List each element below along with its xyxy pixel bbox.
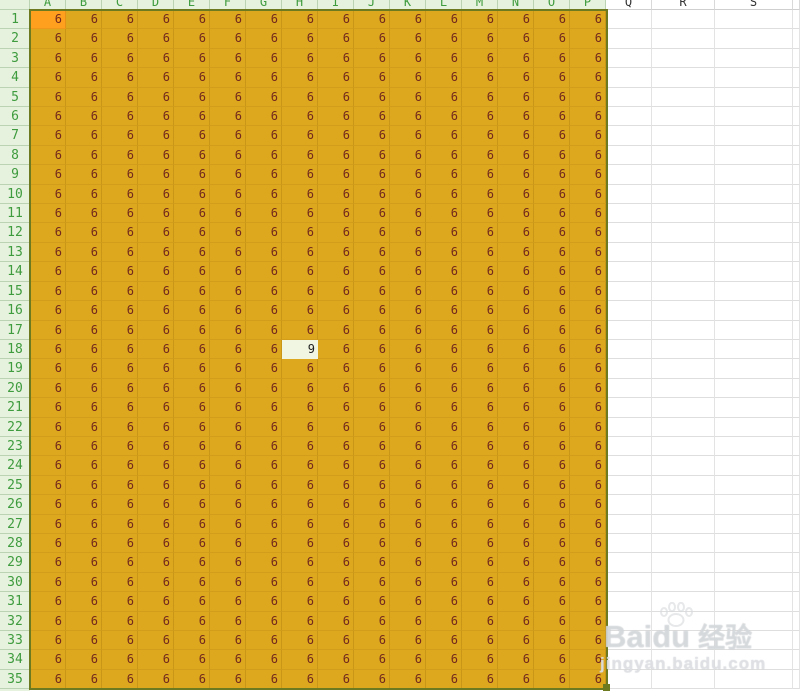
- cell-G12[interactable]: 6: [246, 223, 282, 242]
- cell-K31[interactable]: 6: [390, 592, 426, 611]
- cell-I34[interactable]: 6: [318, 650, 354, 669]
- cell-J16[interactable]: 6: [354, 301, 390, 320]
- cell-J18[interactable]: 6: [354, 340, 390, 359]
- cell-Q8[interactable]: [606, 146, 652, 165]
- cell-F9[interactable]: 6: [210, 165, 246, 184]
- cell-H14[interactable]: 6: [282, 262, 318, 281]
- row-header-9[interactable]: 9: [0, 165, 30, 184]
- cell-B34[interactable]: 6: [66, 650, 102, 669]
- cell-B16[interactable]: 6: [66, 301, 102, 320]
- cell-S6[interactable]: [715, 107, 793, 126]
- cell-R23[interactable]: [652, 437, 715, 456]
- cell-E3[interactable]: 6: [174, 49, 210, 68]
- cell-Q26[interactable]: [606, 495, 652, 514]
- cell-D14[interactable]: 6: [138, 262, 174, 281]
- cell-M10[interactable]: 6: [462, 185, 498, 204]
- cell-A6[interactable]: 6: [30, 107, 66, 126]
- cell-Q24[interactable]: [606, 456, 652, 475]
- cell-M34[interactable]: 6: [462, 650, 498, 669]
- cell-E34[interactable]: 6: [174, 650, 210, 669]
- cell-A2[interactable]: 6: [30, 29, 66, 48]
- cell-P3[interactable]: 6: [570, 49, 606, 68]
- cell-J31[interactable]: 6: [354, 592, 390, 611]
- cell-C14[interactable]: 6: [102, 262, 138, 281]
- cell-A31[interactable]: 6: [30, 592, 66, 611]
- cell-Q31[interactable]: [606, 592, 652, 611]
- cell-G9[interactable]: 6: [246, 165, 282, 184]
- column-header-L[interactable]: L: [426, 0, 462, 10]
- cell-S7[interactable]: [715, 126, 793, 145]
- cell-J25[interactable]: 6: [354, 476, 390, 495]
- cell-C13[interactable]: 6: [102, 243, 138, 262]
- cell-E14[interactable]: 6: [174, 262, 210, 281]
- cell-P19[interactable]: 6: [570, 359, 606, 378]
- cell-S4[interactable]: [715, 68, 793, 87]
- cell-Q20[interactable]: [606, 379, 652, 398]
- cell-J20[interactable]: 6: [354, 379, 390, 398]
- cell-K11[interactable]: 6: [390, 204, 426, 223]
- cell-Q1[interactable]: [606, 10, 652, 29]
- cell-E23[interactable]: 6: [174, 437, 210, 456]
- cell-S3[interactable]: [715, 49, 793, 68]
- cell-R1[interactable]: [652, 10, 715, 29]
- cell-M13[interactable]: 6: [462, 243, 498, 262]
- cell-E24[interactable]: 6: [174, 456, 210, 475]
- cell-B5[interactable]: 6: [66, 88, 102, 107]
- cell-I32[interactable]: 6: [318, 612, 354, 631]
- cell-G29[interactable]: 6: [246, 553, 282, 572]
- cell-N26[interactable]: 6: [498, 495, 534, 514]
- cell-M21[interactable]: 6: [462, 398, 498, 417]
- cell-L7[interactable]: 6: [426, 126, 462, 145]
- cell-L8[interactable]: 6: [426, 146, 462, 165]
- cell-C29[interactable]: 6: [102, 553, 138, 572]
- cell-A33[interactable]: 6: [30, 631, 66, 650]
- column-header-K[interactable]: K: [390, 0, 426, 10]
- cell-N12[interactable]: 6: [498, 223, 534, 242]
- cell-H16[interactable]: 6: [282, 301, 318, 320]
- cell-I1[interactable]: 6: [318, 10, 354, 29]
- cell-B19[interactable]: 6: [66, 359, 102, 378]
- cell-S27[interactable]: [715, 515, 793, 534]
- cell-A13[interactable]: 6: [30, 243, 66, 262]
- cell-B23[interactable]: 6: [66, 437, 102, 456]
- cell-A11[interactable]: 6: [30, 204, 66, 223]
- column-header-I[interactable]: I: [318, 0, 354, 10]
- cell-M18[interactable]: 6: [462, 340, 498, 359]
- cell-D28[interactable]: 6: [138, 534, 174, 553]
- cell-J34[interactable]: 6: [354, 650, 390, 669]
- cell-C35[interactable]: 6: [102, 670, 138, 689]
- cell-A26[interactable]: 6: [30, 495, 66, 514]
- cell-C17[interactable]: 6: [102, 321, 138, 340]
- cell-L5[interactable]: 6: [426, 88, 462, 107]
- cell-A4[interactable]: 6: [30, 68, 66, 87]
- cell-D25[interactable]: 6: [138, 476, 174, 495]
- cell-B28[interactable]: 6: [66, 534, 102, 553]
- cell-K9[interactable]: 6: [390, 165, 426, 184]
- cell-C1[interactable]: 6: [102, 10, 138, 29]
- cell-O18[interactable]: 6: [534, 340, 570, 359]
- cell-F13[interactable]: 6: [210, 243, 246, 262]
- cell-B27[interactable]: 6: [66, 515, 102, 534]
- cell-L33[interactable]: 6: [426, 631, 462, 650]
- row-header-33[interactable]: 33: [0, 631, 30, 650]
- cell-I7[interactable]: 6: [318, 126, 354, 145]
- cell-Q12[interactable]: [606, 223, 652, 242]
- cell-O28[interactable]: 6: [534, 534, 570, 553]
- cell-I16[interactable]: 6: [318, 301, 354, 320]
- cell-D1[interactable]: 6: [138, 10, 174, 29]
- cell-I19[interactable]: 6: [318, 359, 354, 378]
- cell-I33[interactable]: 6: [318, 631, 354, 650]
- cell-O23[interactable]: 6: [534, 437, 570, 456]
- cell-H12[interactable]: 6: [282, 223, 318, 242]
- row-header-6[interactable]: 6: [0, 107, 30, 126]
- cell-G20[interactable]: 6: [246, 379, 282, 398]
- cell-E22[interactable]: 6: [174, 418, 210, 437]
- cell-N21[interactable]: 6: [498, 398, 534, 417]
- cell-H15[interactable]: 6: [282, 282, 318, 301]
- row-header-32[interactable]: 32: [0, 612, 30, 631]
- cell-C26[interactable]: 6: [102, 495, 138, 514]
- cell-M12[interactable]: 6: [462, 223, 498, 242]
- column-header-P[interactable]: P: [570, 0, 606, 10]
- cell-L30[interactable]: 6: [426, 573, 462, 592]
- cell-F1[interactable]: 6: [210, 10, 246, 29]
- cell-H28[interactable]: 6: [282, 534, 318, 553]
- cell-M24[interactable]: 6: [462, 456, 498, 475]
- cell-J13[interactable]: 6: [354, 243, 390, 262]
- cell-O8[interactable]: 6: [534, 146, 570, 165]
- cell-K28[interactable]: 6: [390, 534, 426, 553]
- cell-P32[interactable]: 6: [570, 612, 606, 631]
- cell-B21[interactable]: 6: [66, 398, 102, 417]
- cell-B30[interactable]: 6: [66, 573, 102, 592]
- cell-A28[interactable]: 6: [30, 534, 66, 553]
- cell-M2[interactable]: 6: [462, 29, 498, 48]
- cell-R28[interactable]: [652, 534, 715, 553]
- cell-Q10[interactable]: [606, 185, 652, 204]
- cell-E28[interactable]: 6: [174, 534, 210, 553]
- cell-I21[interactable]: 6: [318, 398, 354, 417]
- cell-L13[interactable]: 6: [426, 243, 462, 262]
- cell-H5[interactable]: 6: [282, 88, 318, 107]
- cell-D21[interactable]: 6: [138, 398, 174, 417]
- cell-I5[interactable]: 6: [318, 88, 354, 107]
- cell-N23[interactable]: 6: [498, 437, 534, 456]
- cell-C34[interactable]: 6: [102, 650, 138, 669]
- cell-N3[interactable]: 6: [498, 49, 534, 68]
- cell-K1[interactable]: 6: [390, 10, 426, 29]
- cell-F35[interactable]: 6: [210, 670, 246, 689]
- cell-M35[interactable]: 6: [462, 670, 498, 689]
- cell-B10[interactable]: 6: [66, 185, 102, 204]
- cell-R22[interactable]: [652, 418, 715, 437]
- cell-C30[interactable]: 6: [102, 573, 138, 592]
- cell-O33[interactable]: 6: [534, 631, 570, 650]
- cell-O15[interactable]: 6: [534, 282, 570, 301]
- cell-F29[interactable]: 6: [210, 553, 246, 572]
- cell-F8[interactable]: 6: [210, 146, 246, 165]
- cell-B26[interactable]: 6: [66, 495, 102, 514]
- cell-S24[interactable]: [715, 456, 793, 475]
- cell-P17[interactable]: 6: [570, 321, 606, 340]
- cell-B11[interactable]: 6: [66, 204, 102, 223]
- row-header-14[interactable]: 14: [0, 262, 30, 281]
- cell-P26[interactable]: 6: [570, 495, 606, 514]
- cell-K30[interactable]: 6: [390, 573, 426, 592]
- cell-M1[interactable]: 6: [462, 10, 498, 29]
- cell-F27[interactable]: 6: [210, 515, 246, 534]
- cell-G30[interactable]: 6: [246, 573, 282, 592]
- cell-M3[interactable]: 6: [462, 49, 498, 68]
- cell-D8[interactable]: 6: [138, 146, 174, 165]
- cell-H22[interactable]: 6: [282, 418, 318, 437]
- cell-H13[interactable]: 6: [282, 243, 318, 262]
- cell-L32[interactable]: 6: [426, 612, 462, 631]
- cell-I4[interactable]: 6: [318, 68, 354, 87]
- cell-S1[interactable]: [715, 10, 793, 29]
- cell-S19[interactable]: [715, 359, 793, 378]
- cell-L31[interactable]: 6: [426, 592, 462, 611]
- cell-O3[interactable]: 6: [534, 49, 570, 68]
- cell-L21[interactable]: 6: [426, 398, 462, 417]
- column-header-O[interactable]: O: [534, 0, 570, 10]
- cell-B17[interactable]: 6: [66, 321, 102, 340]
- cell-P16[interactable]: 6: [570, 301, 606, 320]
- cell-J5[interactable]: 6: [354, 88, 390, 107]
- cell-N19[interactable]: 6: [498, 359, 534, 378]
- cell-R21[interactable]: [652, 398, 715, 417]
- cell-K19[interactable]: 6: [390, 359, 426, 378]
- cell-R16[interactable]: [652, 301, 715, 320]
- cell-A8[interactable]: 6: [30, 146, 66, 165]
- row-header-17[interactable]: 17: [0, 321, 30, 340]
- cell-L28[interactable]: 6: [426, 534, 462, 553]
- cell-K16[interactable]: 6: [390, 301, 426, 320]
- cell-S14[interactable]: [715, 262, 793, 281]
- cell-D17[interactable]: 6: [138, 321, 174, 340]
- row-header-16[interactable]: 16: [0, 301, 30, 320]
- cell-J33[interactable]: 6: [354, 631, 390, 650]
- cell-L2[interactable]: 6: [426, 29, 462, 48]
- cell-B14[interactable]: 6: [66, 262, 102, 281]
- cell-K21[interactable]: 6: [390, 398, 426, 417]
- cell-E27[interactable]: 6: [174, 515, 210, 534]
- cell-A35[interactable]: 6: [30, 670, 66, 689]
- cell-I3[interactable]: 6: [318, 49, 354, 68]
- cell-N25[interactable]: 6: [498, 476, 534, 495]
- cell-P30[interactable]: 6: [570, 573, 606, 592]
- cell-O11[interactable]: 6: [534, 204, 570, 223]
- cell-E26[interactable]: 6: [174, 495, 210, 514]
- cell-G16[interactable]: 6: [246, 301, 282, 320]
- cell-F24[interactable]: 6: [210, 456, 246, 475]
- cell-L19[interactable]: 6: [426, 359, 462, 378]
- cell-I6[interactable]: 6: [318, 107, 354, 126]
- cell-O35[interactable]: 6: [534, 670, 570, 689]
- cell-G18[interactable]: 6: [246, 340, 282, 359]
- cell-Q2[interactable]: [606, 29, 652, 48]
- cell-L14[interactable]: 6: [426, 262, 462, 281]
- row-header-7[interactable]: 7: [0, 126, 30, 145]
- cell-R27[interactable]: [652, 515, 715, 534]
- column-header-B[interactable]: B: [66, 0, 102, 10]
- cell-H34[interactable]: 6: [282, 650, 318, 669]
- cell-K7[interactable]: 6: [390, 126, 426, 145]
- cell-J12[interactable]: 6: [354, 223, 390, 242]
- cell-N7[interactable]: 6: [498, 126, 534, 145]
- cell-D4[interactable]: 6: [138, 68, 174, 87]
- cell-S11[interactable]: [715, 204, 793, 223]
- cell-Q17[interactable]: [606, 321, 652, 340]
- cell-B35[interactable]: 6: [66, 670, 102, 689]
- cell-R12[interactable]: [652, 223, 715, 242]
- cell-R20[interactable]: [652, 379, 715, 398]
- cell-R9[interactable]: [652, 165, 715, 184]
- cell-D5[interactable]: 6: [138, 88, 174, 107]
- cell-N4[interactable]: 6: [498, 68, 534, 87]
- cell-F31[interactable]: 6: [210, 592, 246, 611]
- row-header-35[interactable]: 35: [0, 670, 30, 689]
- cell-P28[interactable]: 6: [570, 534, 606, 553]
- cell-A29[interactable]: 6: [30, 553, 66, 572]
- cell-B8[interactable]: 6: [66, 146, 102, 165]
- cell-G21[interactable]: 6: [246, 398, 282, 417]
- cell-R30[interactable]: [652, 573, 715, 592]
- cell-R10[interactable]: [652, 185, 715, 204]
- cell-I11[interactable]: 6: [318, 204, 354, 223]
- cell-A14[interactable]: 6: [30, 262, 66, 281]
- cell-P15[interactable]: 6: [570, 282, 606, 301]
- cell-H27[interactable]: 6: [282, 515, 318, 534]
- cell-N29[interactable]: 6: [498, 553, 534, 572]
- cell-K3[interactable]: 6: [390, 49, 426, 68]
- cell-M15[interactable]: 6: [462, 282, 498, 301]
- cell-E35[interactable]: 6: [174, 670, 210, 689]
- cell-Q19[interactable]: [606, 359, 652, 378]
- cell-N24[interactable]: 6: [498, 456, 534, 475]
- cell-H17[interactable]: 6: [282, 321, 318, 340]
- cell-C8[interactable]: 6: [102, 146, 138, 165]
- cell-R32[interactable]: [652, 612, 715, 631]
- cell-R7[interactable]: [652, 126, 715, 145]
- cell-N2[interactable]: 6: [498, 29, 534, 48]
- cell-A1[interactable]: 6: [30, 10, 66, 29]
- cell-Q14[interactable]: [606, 262, 652, 281]
- cell-E8[interactable]: 6: [174, 146, 210, 165]
- cell-D26[interactable]: 6: [138, 495, 174, 514]
- cell-F25[interactable]: 6: [210, 476, 246, 495]
- cell-P5[interactable]: 6: [570, 88, 606, 107]
- cell-M31[interactable]: 6: [462, 592, 498, 611]
- row-header-31[interactable]: 31: [0, 592, 30, 611]
- cell-L15[interactable]: 6: [426, 282, 462, 301]
- cell-S16[interactable]: [715, 301, 793, 320]
- cell-C33[interactable]: 6: [102, 631, 138, 650]
- cell-C15[interactable]: 6: [102, 282, 138, 301]
- row-header-10[interactable]: 10: [0, 185, 30, 204]
- cell-E16[interactable]: 6: [174, 301, 210, 320]
- cell-G7[interactable]: 6: [246, 126, 282, 145]
- cell-S8[interactable]: [715, 146, 793, 165]
- cell-R33[interactable]: [652, 631, 715, 650]
- cell-H6[interactable]: 6: [282, 107, 318, 126]
- cell-A30[interactable]: 6: [30, 573, 66, 592]
- cell-N16[interactable]: 6: [498, 301, 534, 320]
- cell-F22[interactable]: 6: [210, 418, 246, 437]
- cell-R19[interactable]: [652, 359, 715, 378]
- cell-L1[interactable]: 6: [426, 10, 462, 29]
- cell-F23[interactable]: 6: [210, 437, 246, 456]
- cell-G4[interactable]: 6: [246, 68, 282, 87]
- cell-L23[interactable]: 6: [426, 437, 462, 456]
- cell-O14[interactable]: 6: [534, 262, 570, 281]
- cell-R35[interactable]: [652, 670, 715, 689]
- cell-O19[interactable]: 6: [534, 359, 570, 378]
- cell-Q25[interactable]: [606, 476, 652, 495]
- cell-E7[interactable]: 6: [174, 126, 210, 145]
- cell-G8[interactable]: 6: [246, 146, 282, 165]
- cell-B20[interactable]: 6: [66, 379, 102, 398]
- cell-O4[interactable]: 6: [534, 68, 570, 87]
- cell-H18[interactable]: 9: [282, 340, 318, 359]
- cell-D9[interactable]: 6: [138, 165, 174, 184]
- cell-A20[interactable]: 6: [30, 379, 66, 398]
- cell-B15[interactable]: 6: [66, 282, 102, 301]
- cell-K12[interactable]: 6: [390, 223, 426, 242]
- cell-H20[interactable]: 6: [282, 379, 318, 398]
- cell-I30[interactable]: 6: [318, 573, 354, 592]
- cell-E12[interactable]: 6: [174, 223, 210, 242]
- cell-K14[interactable]: 6: [390, 262, 426, 281]
- cell-R13[interactable]: [652, 243, 715, 262]
- cell-E17[interactable]: 6: [174, 321, 210, 340]
- cell-M32[interactable]: 6: [462, 612, 498, 631]
- cell-M17[interactable]: 6: [462, 321, 498, 340]
- cell-L18[interactable]: 6: [426, 340, 462, 359]
- cell-O22[interactable]: 6: [534, 418, 570, 437]
- cell-M4[interactable]: 6: [462, 68, 498, 87]
- cell-I14[interactable]: 6: [318, 262, 354, 281]
- cell-M7[interactable]: 6: [462, 126, 498, 145]
- cell-I28[interactable]: 6: [318, 534, 354, 553]
- cell-O1[interactable]: 6: [534, 10, 570, 29]
- cell-A32[interactable]: 6: [30, 612, 66, 631]
- cell-N34[interactable]: 6: [498, 650, 534, 669]
- cell-E18[interactable]: 6: [174, 340, 210, 359]
- cell-O29[interactable]: 6: [534, 553, 570, 572]
- cell-O9[interactable]: 6: [534, 165, 570, 184]
- cell-M11[interactable]: 6: [462, 204, 498, 223]
- cell-E25[interactable]: 6: [174, 476, 210, 495]
- cell-I35[interactable]: 6: [318, 670, 354, 689]
- cell-N32[interactable]: 6: [498, 612, 534, 631]
- cell-L34[interactable]: 6: [426, 650, 462, 669]
- cell-Q22[interactable]: [606, 418, 652, 437]
- cell-S22[interactable]: [715, 418, 793, 437]
- cell-M16[interactable]: 6: [462, 301, 498, 320]
- cell-E30[interactable]: 6: [174, 573, 210, 592]
- cell-D13[interactable]: 6: [138, 243, 174, 262]
- cell-K34[interactable]: 6: [390, 650, 426, 669]
- cell-K29[interactable]: 6: [390, 553, 426, 572]
- cell-G5[interactable]: 6: [246, 88, 282, 107]
- row-header-18[interactable]: 18: [0, 340, 30, 359]
- cell-D6[interactable]: 6: [138, 107, 174, 126]
- cell-P21[interactable]: 6: [570, 398, 606, 417]
